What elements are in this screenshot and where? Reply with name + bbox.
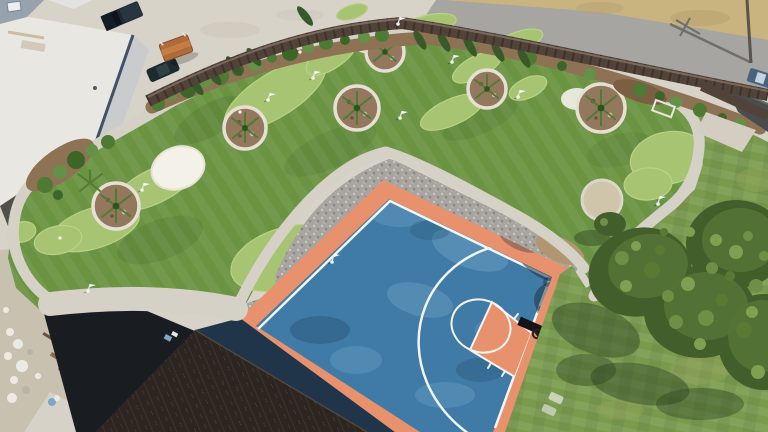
cup-hole (238, 110, 241, 113)
dry-grass-patch (670, 10, 730, 26)
scene-svg (0, 0, 768, 432)
bucket-lid (54, 395, 60, 401)
palm-center (113, 203, 120, 210)
roof-vent-icon (93, 86, 97, 90)
cup-hole (58, 236, 61, 239)
neighbor-window (7, 1, 21, 12)
dry-grass-patch (576, 2, 624, 14)
concrete-stain (200, 22, 260, 38)
walkway (50, 299, 236, 309)
cup-hole (298, 50, 301, 53)
aerial-photo (0, 0, 768, 432)
palm-center (484, 86, 490, 92)
palm-center (242, 125, 248, 131)
palm-center (382, 49, 388, 55)
palm-center (354, 105, 360, 111)
palm-center (598, 105, 605, 112)
